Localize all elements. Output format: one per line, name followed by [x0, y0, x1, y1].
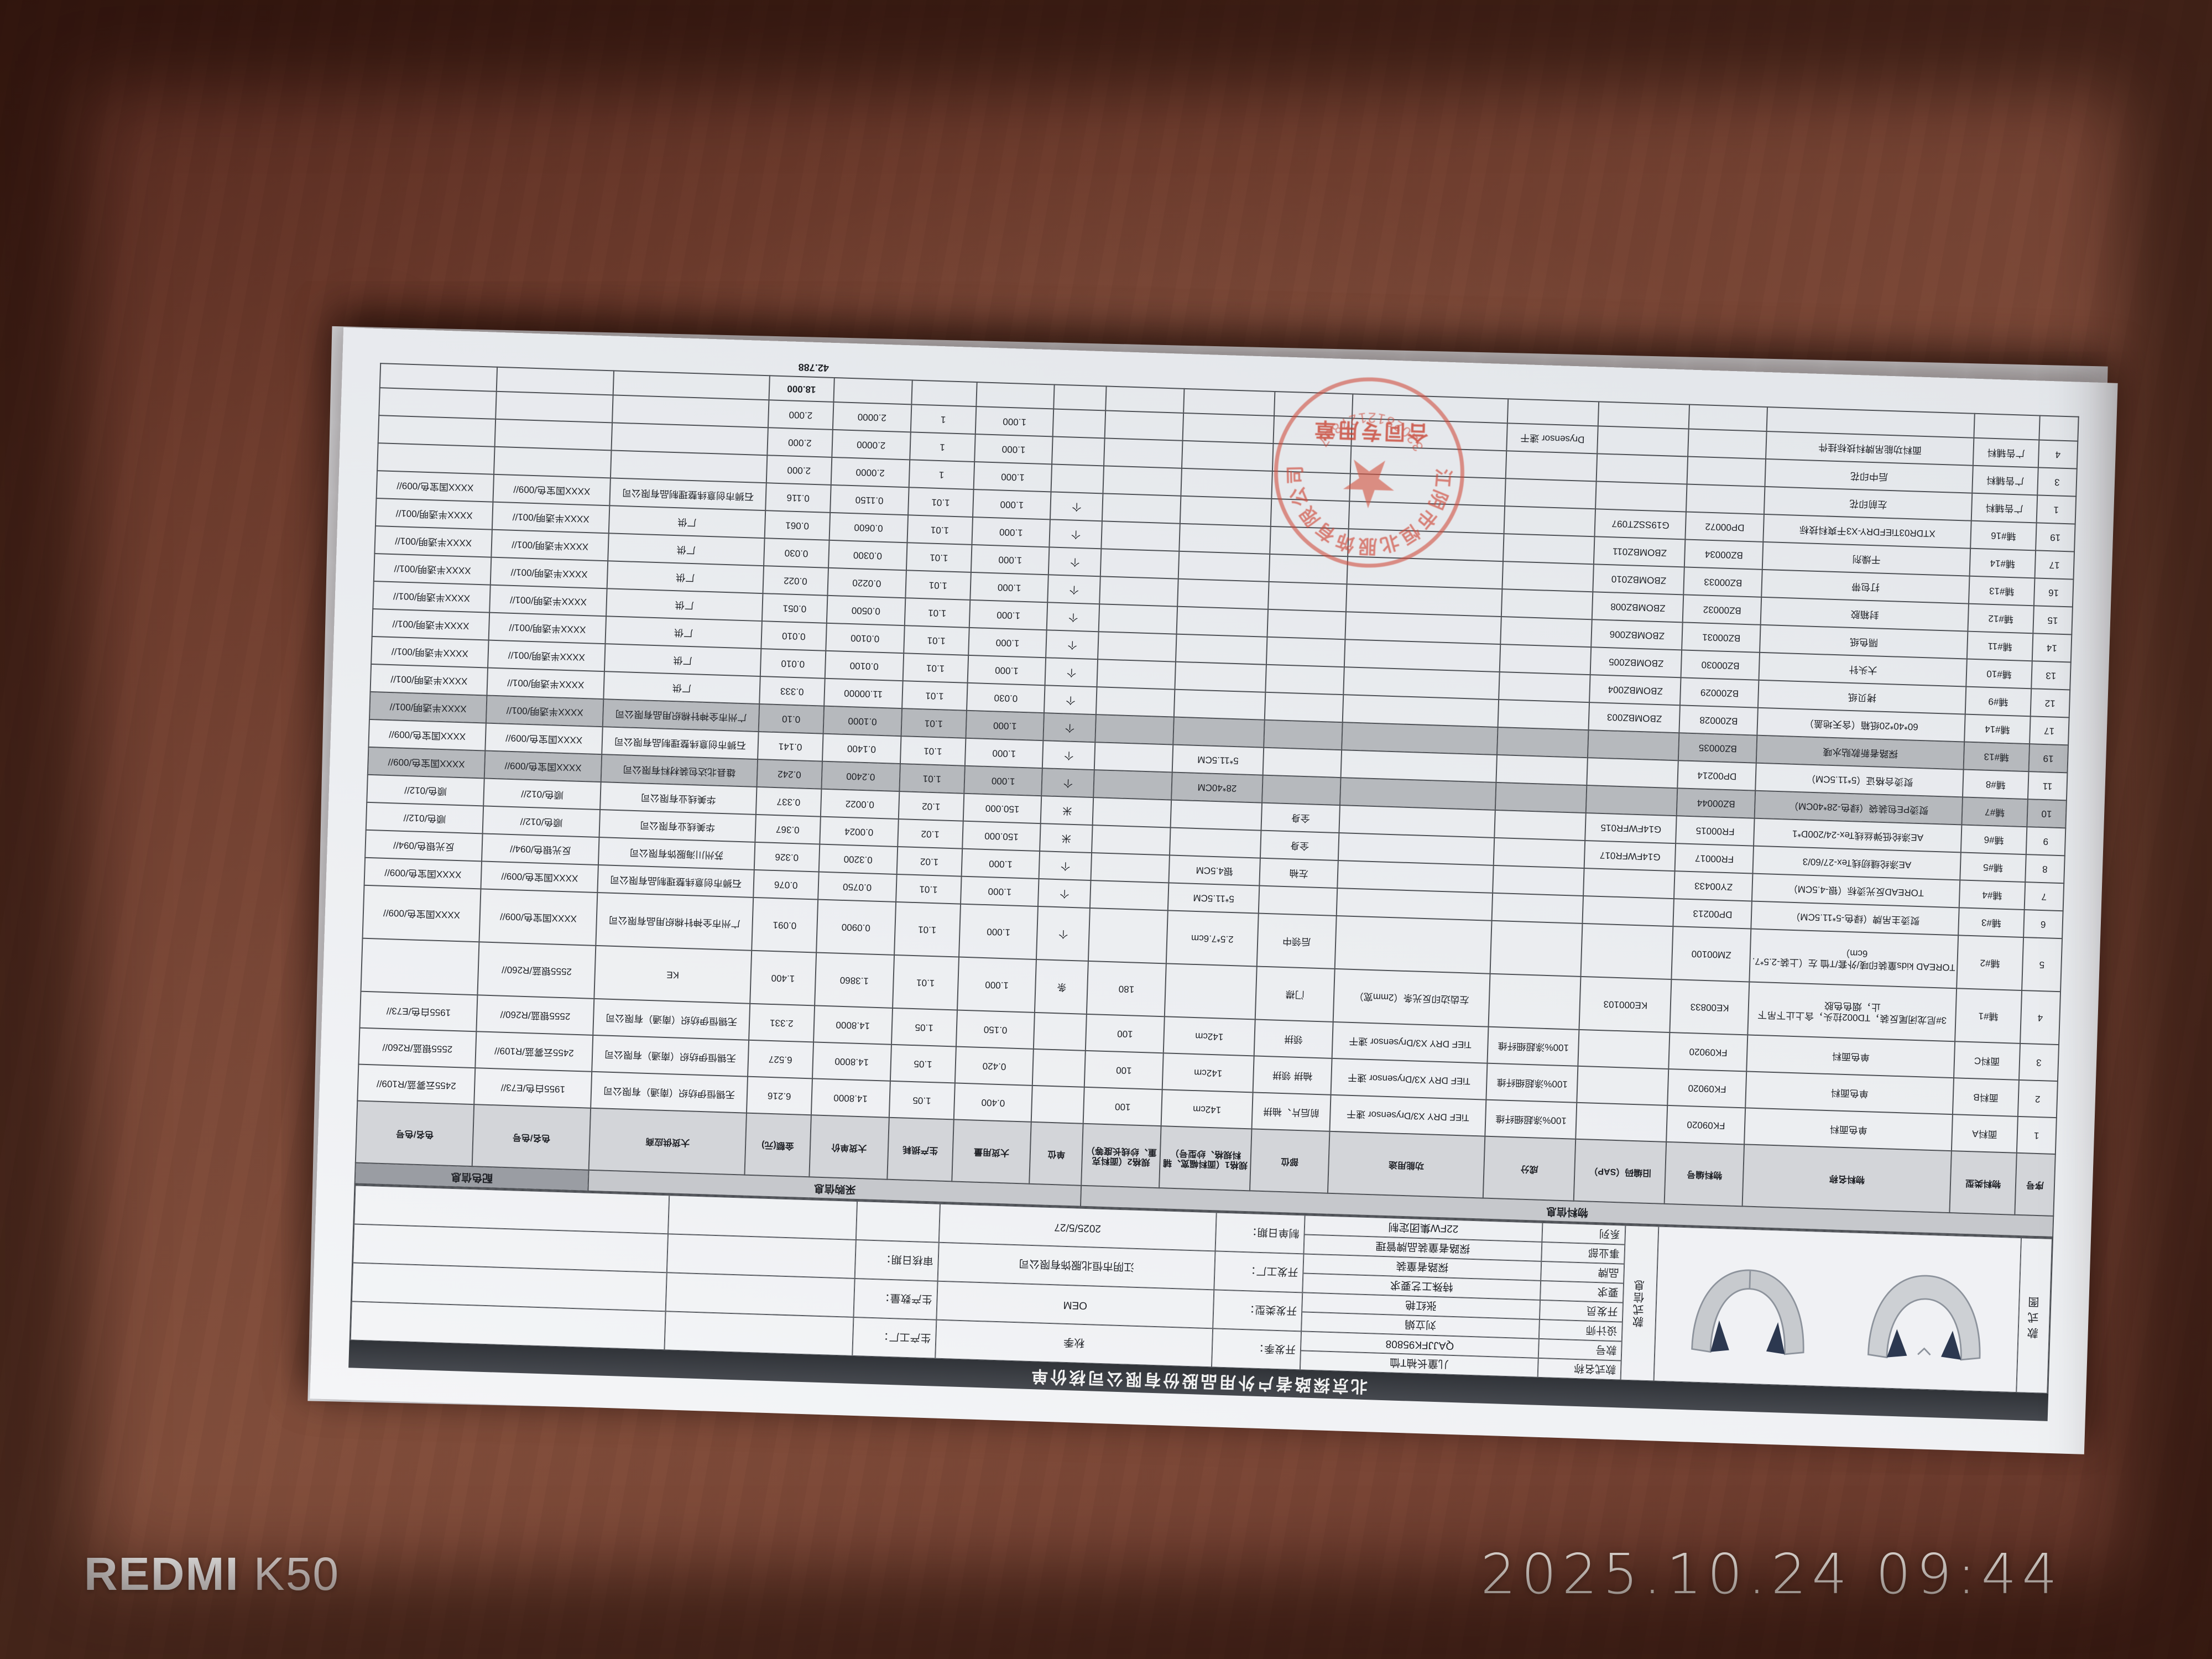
bom-cell	[1099, 604, 1177, 634]
garment-sketch-front	[1667, 1246, 1831, 1367]
bom-cell: 14.8000	[812, 1042, 891, 1081]
bom-cell: 0.010	[760, 649, 826, 679]
photo-scene: 北京探路者户外用品股份有限公司核价单 款式图款式信息款式名称儿童长袖T恤款号QA…	[0, 0, 2212, 1659]
bom-cell: 1	[909, 460, 974, 489]
garment-sketches	[1654, 1227, 2021, 1392]
bom-cell: 个	[1047, 602, 1099, 632]
bom-cell: 1.01	[908, 487, 974, 517]
bom-cell	[1170, 827, 1261, 858]
bom-cell	[1100, 549, 1179, 578]
bom-cell: DP00214	[1678, 760, 1756, 790]
bom-cell: 2.331	[749, 1004, 815, 1042]
style-field-label: 品牌	[1541, 1261, 1624, 1284]
bom-cell	[1265, 692, 1343, 722]
bom-cell: 100%涤超细纤维	[1485, 1100, 1577, 1139]
bom-cell	[1504, 506, 1596, 536]
order-field-value2	[666, 1272, 855, 1317]
bom-cell: BZ00035	[1678, 733, 1757, 763]
bom-cell: 0.1000	[823, 706, 901, 736]
bom-cell	[1346, 584, 1503, 617]
bom-cell: 辅#8	[1963, 769, 2028, 799]
bom-cell: 1.3860	[815, 952, 894, 1008]
bom-cell: 2	[2018, 1080, 2058, 1118]
bom-cell	[1090, 880, 1168, 910]
bom-cell: DP00213	[1673, 899, 1752, 928]
bom-cell: 17	[2034, 550, 2074, 579]
bom-cell: 1.02	[898, 791, 964, 821]
bom-cell: ZBOMBZ004	[1589, 675, 1681, 705]
bom-cell: BZ00028	[1679, 705, 1758, 735]
bom-cell	[1495, 782, 1587, 813]
bom-cell: G14FWFR015	[1585, 813, 1677, 843]
bom-cell: 1.01	[905, 570, 971, 600]
bom-cell: 顺色/012//	[483, 778, 601, 810]
bom-cell: 后领中	[1257, 914, 1337, 969]
bom-cell: 0.242	[757, 759, 822, 789]
bom-cell	[1034, 1013, 1087, 1051]
bom-cell	[1500, 644, 1592, 675]
bom-cell: XXXX半透明/001//	[374, 526, 492, 557]
bom-cell: 2.0000	[831, 457, 910, 487]
bom-cell	[1095, 714, 1174, 744]
bom-cell: BZ00034	[1684, 539, 1763, 569]
bom-cell: 13	[2031, 661, 2071, 690]
style-info-label: 款式信息	[1621, 1225, 1659, 1381]
column-header: 成分	[1483, 1136, 1576, 1201]
bom-cell: 6	[2023, 910, 2063, 938]
bom-cell: 19	[2028, 744, 2068, 773]
bom-cell	[1581, 924, 1673, 979]
bom-cell: 顺色/012//	[483, 806, 601, 837]
bom-cell: 2.0000	[833, 402, 911, 432]
brand-primary: REDMI	[84, 1548, 239, 1600]
order-field-label2: 生产工厂：	[852, 1317, 936, 1359]
bom-cell: 个	[1044, 685, 1097, 714]
bom-cell: 单色面料	[1744, 1108, 1953, 1151]
bom-cell: XXXX半透明/001//	[371, 664, 488, 696]
bom-cell: 无锡恒伊纺织（南通）有限公司	[593, 999, 749, 1040]
bom-cell: 华美线业有限公司	[600, 782, 757, 815]
order-field-label2: 审核日期：	[855, 1240, 939, 1281]
column-header: 功能用途	[1328, 1131, 1485, 1198]
bom-cell	[1597, 453, 1688, 484]
bom-cell: 袖拼 领拼	[1253, 1056, 1332, 1094]
bom-cell	[1500, 617, 1592, 647]
bom-cell: 11	[2028, 771, 2068, 800]
bom-cell	[611, 450, 767, 483]
bom-cell: BZ00033	[1684, 567, 1762, 597]
bom-cell: 无锡恒伊纺织（南通）有限公司	[591, 1072, 747, 1113]
bom-cell: 1.400	[750, 951, 816, 1006]
bom-cell	[1268, 582, 1347, 612]
bom-cell: G19SSZT097	[1595, 509, 1687, 539]
column-header: 色名/色号	[356, 1101, 474, 1167]
bom-cell	[1102, 521, 1180, 551]
bom-cell: 1955白色/E73//	[359, 992, 477, 1032]
bom-cell: XXXX国宝色/009//	[368, 747, 486, 779]
bom-cell: 辅#4	[1959, 880, 2025, 910]
bom-cell	[1054, 385, 1107, 411]
bom-cell: 厂供	[609, 505, 765, 538]
bom-cell	[495, 392, 613, 423]
bom-cell	[1494, 838, 1585, 868]
bom-cell: 2.5*7.6cm	[1166, 910, 1259, 966]
bom-cell: XXXX半透明/001//	[491, 530, 609, 561]
bom-cell: 1.02	[896, 847, 962, 877]
bom-cell	[380, 363, 497, 392]
bom-cell	[1494, 810, 1586, 841]
bom-cell: 6.527	[748, 1040, 813, 1079]
bom-cell	[1052, 436, 1105, 466]
bom-cell: 142cm	[1162, 1053, 1254, 1092]
bom-cell: XXXX半透明/001//	[373, 581, 491, 613]
bom-cell: XXXX半透明/001//	[371, 637, 489, 668]
bom-cell	[1576, 1103, 1668, 1142]
bom-cell: 12	[2030, 688, 2070, 717]
bom-cell	[1262, 775, 1340, 805]
bom-cell: 0.0900	[816, 900, 896, 955]
bom-cell: 0.0024	[820, 817, 898, 847]
bom-cell: 单色面料	[1746, 1035, 1955, 1078]
bom-cell	[1269, 554, 1348, 584]
bom-cell	[1264, 720, 1342, 750]
bom-cell: 2.000	[767, 427, 833, 457]
bom-cell	[1183, 413, 1275, 444]
bom-cell: 反光银色/094//	[365, 830, 483, 862]
style-field-label: 开发员	[1540, 1300, 1623, 1322]
bom-cell: 142cm	[1164, 1016, 1255, 1056]
bom-cell	[911, 380, 977, 406]
bom-cell: 1.000	[966, 711, 1044, 740]
bom-cell: 1.000	[965, 738, 1044, 768]
bom-cell	[1687, 457, 1766, 487]
bom-cell	[2039, 415, 2079, 441]
bom-cell	[1270, 526, 1348, 556]
bom-cell	[1179, 524, 1271, 554]
column-header: 大货单价	[809, 1115, 889, 1179]
bom-cell: 面料C	[1954, 1041, 2020, 1080]
bom-cell: 无锡恒伊纺织（南通）有限公司	[592, 1035, 748, 1077]
bom-cell: 15	[2033, 606, 2073, 634]
bom-cell: 个	[1044, 713, 1096, 742]
style-field-label: 要求	[1540, 1281, 1624, 1303]
bom-cell: 辅#2	[1957, 935, 2023, 990]
bom-cell	[612, 395, 769, 427]
bom-cell: 辅#16	[1971, 521, 2037, 551]
bom-cell: 雄县北达包装材料有限公司	[601, 754, 758, 787]
bom-cell: 厂供	[607, 561, 764, 593]
bom-cell: 0.337	[756, 787, 822, 817]
bom-cell: XXXX半透明/001//	[374, 554, 492, 585]
bom-cell: XXXX国宝色/009//	[377, 471, 494, 502]
bom-cell: 银4.5CM	[1168, 855, 1260, 885]
bom-cell: 1.05	[891, 1008, 957, 1047]
bom-cell: 苏州川海服饰有限公司	[598, 837, 755, 870]
bom-cell: 辅#3	[1959, 907, 2025, 937]
bom-cell: 个	[1048, 547, 1101, 576]
bom-cell: 1.01	[894, 902, 961, 957]
bom-cell: 0.0750	[818, 872, 896, 902]
bom-cell	[1274, 416, 1352, 446]
bom-cell: 0.022	[763, 566, 828, 596]
bom-cell: 14.8000	[811, 1078, 890, 1117]
column-header: 规格2（面料克重、纱线长度等）	[1081, 1124, 1161, 1188]
brand-secondary: K50	[254, 1548, 340, 1600]
bom-cell	[1183, 389, 1275, 416]
bom-cell	[1587, 758, 1679, 788]
bom-cell: 顺色/012//	[366, 802, 484, 834]
bom-cell	[1171, 800, 1262, 831]
bom-cell	[1103, 466, 1182, 495]
bom-cell: 辅#5	[1960, 852, 2026, 882]
bom-cell	[1267, 609, 1346, 639]
bom-cell: 0.0100	[825, 651, 904, 681]
bom-cell	[1099, 576, 1178, 606]
bom-cell: 0.3200	[819, 844, 898, 874]
bom-cell: FK09020	[1667, 1105, 1746, 1144]
bom-cell	[1263, 748, 1342, 778]
bom-cell: XXXX国宝色/009//	[479, 889, 598, 946]
bom-cell: 0.030	[764, 538, 830, 568]
bom-cell	[613, 371, 770, 400]
bom-cell	[379, 388, 497, 419]
bom-cell: 9	[2026, 827, 2065, 855]
bom-cell	[1337, 888, 1493, 921]
bom-cell	[1032, 1049, 1086, 1087]
bom-cell: 100	[1086, 1014, 1165, 1053]
bom-cell: 个	[1042, 740, 1095, 770]
bom-cell: BZ00032	[1683, 594, 1761, 624]
bom-cell: 0.0600	[829, 513, 907, 542]
bom-cell: 辅#13	[1964, 742, 2030, 772]
bom-cell: 个	[1036, 906, 1090, 961]
bom-cell	[1097, 659, 1176, 689]
bom-cell: 广告辅料	[1973, 438, 2039, 468]
bom-cell: 4	[2038, 440, 2078, 468]
bom-cell: 0.091	[752, 898, 818, 953]
column-header: 生产损耗	[887, 1118, 954, 1182]
bom-cell: 0.10	[758, 704, 824, 734]
bom-cell	[1503, 534, 1595, 564]
bom-cell	[1334, 916, 1491, 974]
bom-cell: 2455云雾蓝/R109//	[357, 1065, 475, 1105]
bom-cell: 4	[2020, 990, 2060, 1045]
bom-cell: 反光银色/094//	[482, 833, 599, 865]
bom-cell: KE000103	[1579, 977, 1672, 1032]
bom-cell	[1053, 409, 1105, 438]
bom-cell	[1588, 730, 1679, 760]
bom-cell: 1.01	[899, 764, 965, 794]
bom-cell: 16	[2034, 578, 2074, 607]
bom-cell: 10	[2027, 799, 2067, 828]
bom-cell: 1.000	[961, 877, 1039, 906]
bom-cell: FR00015	[1676, 816, 1755, 846]
bom-cell: TOREAD kids童装印唛/外套/T恤 左（上装-2.5*7.6cm）	[1749, 929, 1958, 989]
bom-cell: XXXX国宝色/009//	[485, 723, 603, 755]
style-field-label: 款号	[1538, 1339, 1622, 1361]
bom-cell: 5	[2022, 937, 2062, 992]
bom-cell: 广告辅料	[1971, 493, 2037, 523]
bom-cell	[1181, 468, 1272, 499]
bom-cell: XXXX半透明/001//	[491, 557, 608, 589]
bom-cell: 0.326	[754, 842, 820, 872]
bom-cell: XXXX国宝色/009//	[493, 474, 611, 506]
bom-cell: XXXX半透明/001//	[375, 498, 493, 530]
bom-cell	[1492, 893, 1584, 924]
bom-cell	[833, 378, 912, 404]
bom-cell: 1	[2016, 1117, 2056, 1154]
bom-cell	[1272, 444, 1351, 473]
bom-cell: 100	[1083, 1087, 1162, 1126]
bom-cell	[494, 447, 612, 478]
bom-cell	[1497, 727, 1589, 758]
bom-cell: 1.01	[901, 708, 967, 738]
bom-cell	[1177, 607, 1269, 637]
bom-cell	[1493, 865, 1584, 896]
bom-cell: 1.000	[973, 489, 1051, 519]
bom-cell: 6.216	[747, 1077, 812, 1115]
bom-cell	[1340, 750, 1497, 782]
bom-cell	[1093, 770, 1172, 800]
bom-cell: 142cm	[1161, 1089, 1253, 1129]
bom-cell	[1094, 742, 1173, 772]
bom-cell: 1.01	[896, 874, 962, 904]
bom-cell	[1104, 438, 1182, 468]
bom-cell: 100	[1084, 1051, 1164, 1089]
bom-cell: ZBOMBZ008	[1592, 592, 1684, 622]
bom-cell: FK09020	[1668, 1069, 1747, 1108]
bom-cell: BZ00044	[1677, 788, 1755, 818]
bom-cell	[1096, 687, 1175, 717]
style-field-label: 设计师	[1539, 1319, 1623, 1342]
bom-cell: 前后片、袖拼	[1252, 1092, 1331, 1131]
bom-cell	[1178, 551, 1270, 582]
bom-cell	[1098, 632, 1176, 661]
bom-cell: 0.061	[764, 510, 830, 540]
bom-cell: BZ00029	[1680, 677, 1759, 707]
bom-cell: 厂供	[606, 616, 762, 649]
style-field-label: 系列	[1542, 1223, 1625, 1245]
bom-cell: FR00017	[1675, 843, 1754, 873]
bom-cell: 0.030	[967, 683, 1045, 713]
bom-cell: ZBOMBZ003	[1589, 702, 1681, 733]
bom-cell: 个	[1045, 658, 1098, 687]
bom-cell	[1349, 473, 1506, 506]
bom-cell	[1351, 418, 1507, 451]
bom-cell: Drysensor 速干	[1506, 423, 1598, 453]
bom-cell	[1489, 974, 1581, 1030]
bom-cell: XXXX半透明/001//	[488, 640, 606, 672]
bom-cell	[1092, 825, 1170, 855]
bom-cell: 辅#13	[1969, 576, 2034, 606]
order-field-label: 开发工厂：	[1214, 1251, 1303, 1292]
bom-cell: 辅#1	[1955, 988, 2022, 1044]
bom-cell: 个	[1042, 768, 1094, 797]
bom-cell	[1506, 451, 1598, 481]
bom-cell: 0.150	[956, 1010, 1035, 1049]
bom-cell: 0.0500	[827, 596, 905, 625]
bom-cell: 1.01	[893, 955, 959, 1010]
column-header: 序号	[2015, 1153, 2056, 1216]
bom-cell: 3	[2037, 467, 2077, 496]
bom-cell	[1274, 392, 1353, 418]
column-header: 物料编号	[1665, 1142, 1744, 1206]
order-field-label: 制单日期：	[1215, 1212, 1305, 1254]
bom-cell	[1266, 637, 1345, 667]
bom-cell: 17	[2030, 716, 2069, 745]
bom-cell	[1345, 612, 1501, 644]
bom-cell: XXXX半透明/001//	[489, 585, 607, 617]
bom-cell: 左齿边印反光条（2mm宽）	[1333, 969, 1490, 1027]
style-field-label: 事业部	[1541, 1242, 1625, 1264]
bom-cell	[1498, 700, 1590, 730]
bom-cell: TiEF DRY X3/Drysensor 速干	[1332, 1022, 1488, 1063]
bom-cell: XXXX半透明/001//	[372, 609, 490, 640]
bom-cell: FK09020	[1669, 1032, 1748, 1071]
bom-cell	[1088, 908, 1168, 963]
bom-cell: 条	[1035, 959, 1088, 1014]
bom-cell	[1348, 501, 1505, 534]
bom-cell: XXXX国宝色/009//	[363, 885, 481, 942]
bom-cell: ZBOMBZ010	[1593, 564, 1685, 594]
bom-cell: 门襟	[1255, 967, 1335, 1022]
bom-cell	[1583, 896, 1674, 926]
bom-cell	[378, 415, 496, 447]
bom-cell: 0.400	[954, 1083, 1033, 1121]
bom-cell	[976, 382, 1055, 409]
bom-cell	[1350, 446, 1507, 478]
bom-cell	[1271, 471, 1350, 501]
bom-cell: 1.02	[898, 819, 963, 849]
bom-cell: 单色面料	[1745, 1071, 1954, 1114]
bom-cell	[497, 367, 614, 395]
bom-cell: 1.000	[967, 655, 1046, 685]
bom-cell	[1165, 963, 1257, 1019]
bom-cell: 辅#14	[1965, 714, 2031, 744]
bom-cell: 米	[1041, 796, 1093, 825]
bom-cell: 1	[2036, 495, 2076, 524]
bom-cell: 0.333	[759, 676, 825, 706]
bom-cell	[1173, 717, 1265, 748]
bom-cell	[1174, 690, 1266, 720]
bom-cell: XXXX国宝色/009//	[481, 861, 599, 893]
bom-cell: ZBOMBZ011	[1594, 536, 1686, 567]
bom-cell: 5*11.5CM	[1168, 883, 1260, 913]
bom-cell	[1259, 886, 1337, 916]
bom-cell: 100%涤超细纤维	[1488, 1027, 1579, 1066]
bom-cell: 1.01	[906, 542, 972, 572]
bom-cell: XXXX半透明/001//	[492, 502, 610, 534]
column-header: 物料名称	[1743, 1144, 1952, 1213]
bom-cell: 全身	[1261, 803, 1340, 833]
bom-cell	[612, 422, 768, 455]
bom-cell: 0.0220	[827, 568, 906, 598]
bom-cell: 1.000	[968, 628, 1047, 658]
bom-cell: TiEF DRY X3/Drysensor 速干	[1331, 1058, 1487, 1100]
bom-cell: ZBOMBZ006	[1592, 619, 1683, 650]
bom-cell	[1343, 667, 1500, 700]
bom-cell: XXXX国宝色/009//	[368, 719, 486, 751]
order-field-value2	[668, 1195, 857, 1240]
bom-cell: 辅#12	[1968, 604, 2034, 634]
order-field-value2	[667, 1234, 856, 1279]
bom-cell: 180	[1087, 961, 1166, 1016]
bom-cell	[1180, 496, 1272, 526]
bom-cell: TiEF DRY X3/Drysensor 速干	[1329, 1095, 1486, 1136]
column-header: 规格1（面料幅宽、辅料规格、纱型号）	[1159, 1126, 1252, 1191]
bom-cell	[1093, 797, 1171, 827]
column-header: 大货供应商	[589, 1108, 747, 1175]
